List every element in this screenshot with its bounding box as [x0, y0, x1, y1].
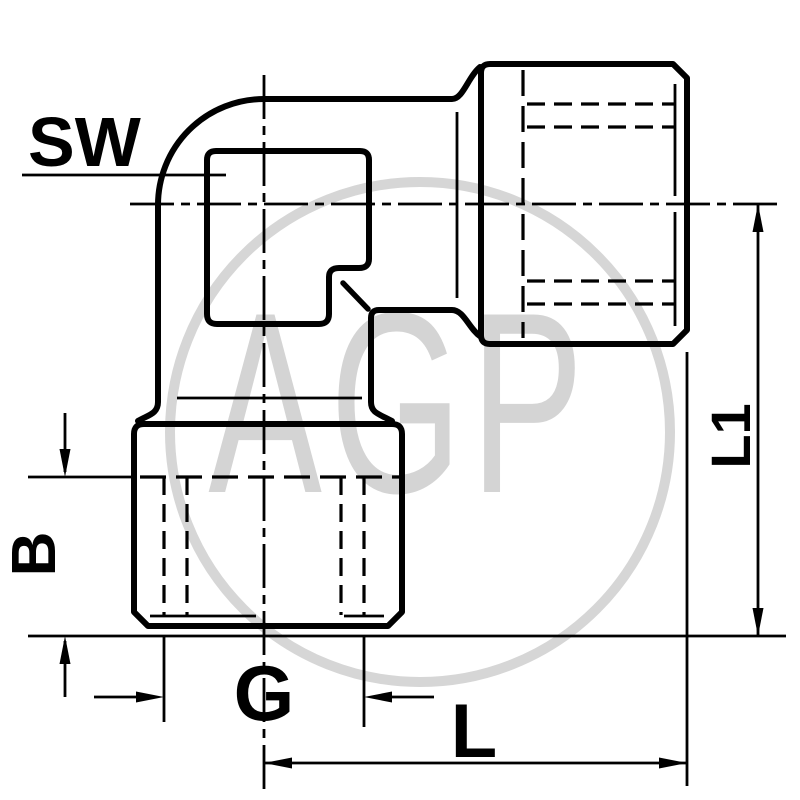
dimension-label-sw: SW — [28, 103, 141, 181]
l1-arrow-up — [753, 204, 764, 232]
l1-arrow-down — [753, 608, 764, 636]
b-arrow-up — [60, 636, 71, 664]
g-dimension: G — [94, 636, 434, 737]
l-arrow-right — [659, 758, 687, 769]
dimension-label-l1: L1 — [699, 403, 762, 468]
dimension-label-b: B — [0, 532, 69, 577]
l1-dimension: L1 — [699, 204, 764, 636]
g-arrow-left — [364, 692, 392, 703]
technical-drawing-page: AGP — [0, 0, 800, 800]
elbow-fitting-technical-drawing: AGP — [0, 0, 800, 800]
dimension-label-l: L — [451, 689, 497, 774]
l-arrow-left — [264, 758, 292, 769]
g-arrow-right — [136, 692, 164, 703]
dimension-label-g: G — [234, 649, 295, 737]
sw-callout: SW — [22, 103, 226, 181]
b-arrow-down — [60, 449, 71, 477]
watermark: AGP — [170, 182, 670, 682]
